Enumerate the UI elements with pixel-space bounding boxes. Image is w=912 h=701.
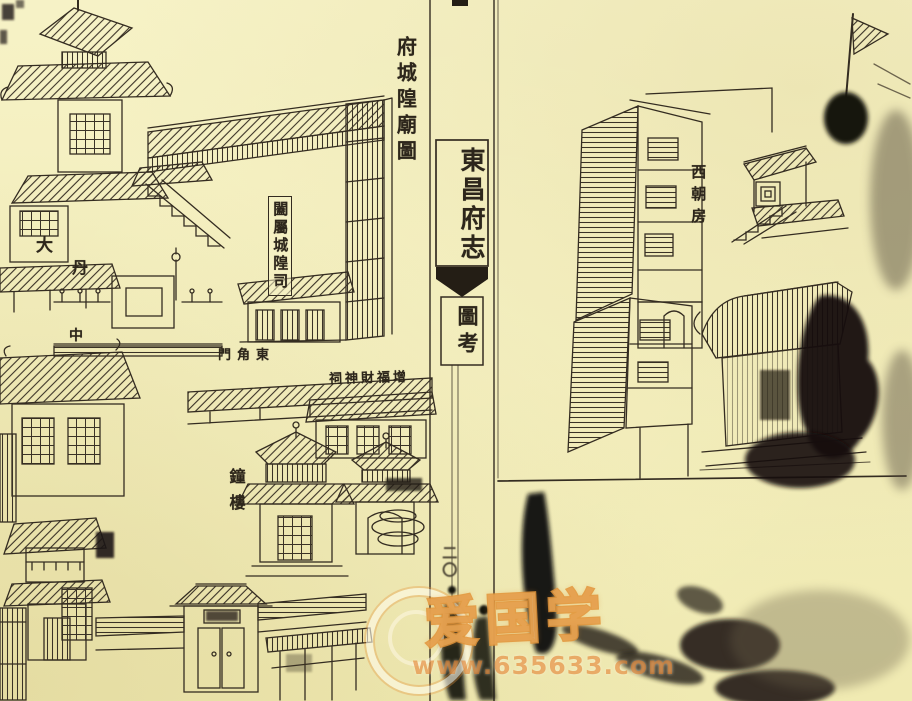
compound-office-label: 闔屬城隍司 xyxy=(268,196,292,296)
section-title: 圖考 xyxy=(444,305,480,359)
wealth-god-shrine-label: 祠神財福增 xyxy=(329,370,409,388)
bell-tower-label: 鐘樓 xyxy=(226,468,246,520)
left-gate-tower xyxy=(0,206,120,312)
west-chamber-label: 西朝房 xyxy=(689,164,707,230)
watermark-url: www.635633.com xyxy=(412,651,675,680)
left-page-title: 府城隍廟圖 xyxy=(393,36,417,166)
great-hall xyxy=(0,339,140,522)
east-corner-gate-label: 門角東 xyxy=(218,348,275,364)
zhong-character-label: 中 xyxy=(69,328,83,345)
da-character-label: 大 xyxy=(36,236,53,257)
book-title: 東昌府志 xyxy=(438,147,486,263)
side-gate-with-steps xyxy=(732,146,848,244)
stairway xyxy=(132,162,230,248)
opera-tower xyxy=(0,518,114,700)
west-chamber-lower-hall xyxy=(568,298,692,478)
page-number: 二〇 xyxy=(440,545,458,579)
dan-character-label: 丹 xyxy=(72,258,88,278)
watermark-logo: 爱国学 xyxy=(422,569,609,658)
corner-ink-marks xyxy=(0,0,24,44)
incense-pavilion xyxy=(336,433,438,554)
scanned-book-spread: 府城隍廟圖 闔屬城隍司 大 丹 中 門角東 祠神財福增 鐘樓 西朝房 東昌府志 … xyxy=(0,0,912,701)
palisade-gate xyxy=(266,628,372,700)
